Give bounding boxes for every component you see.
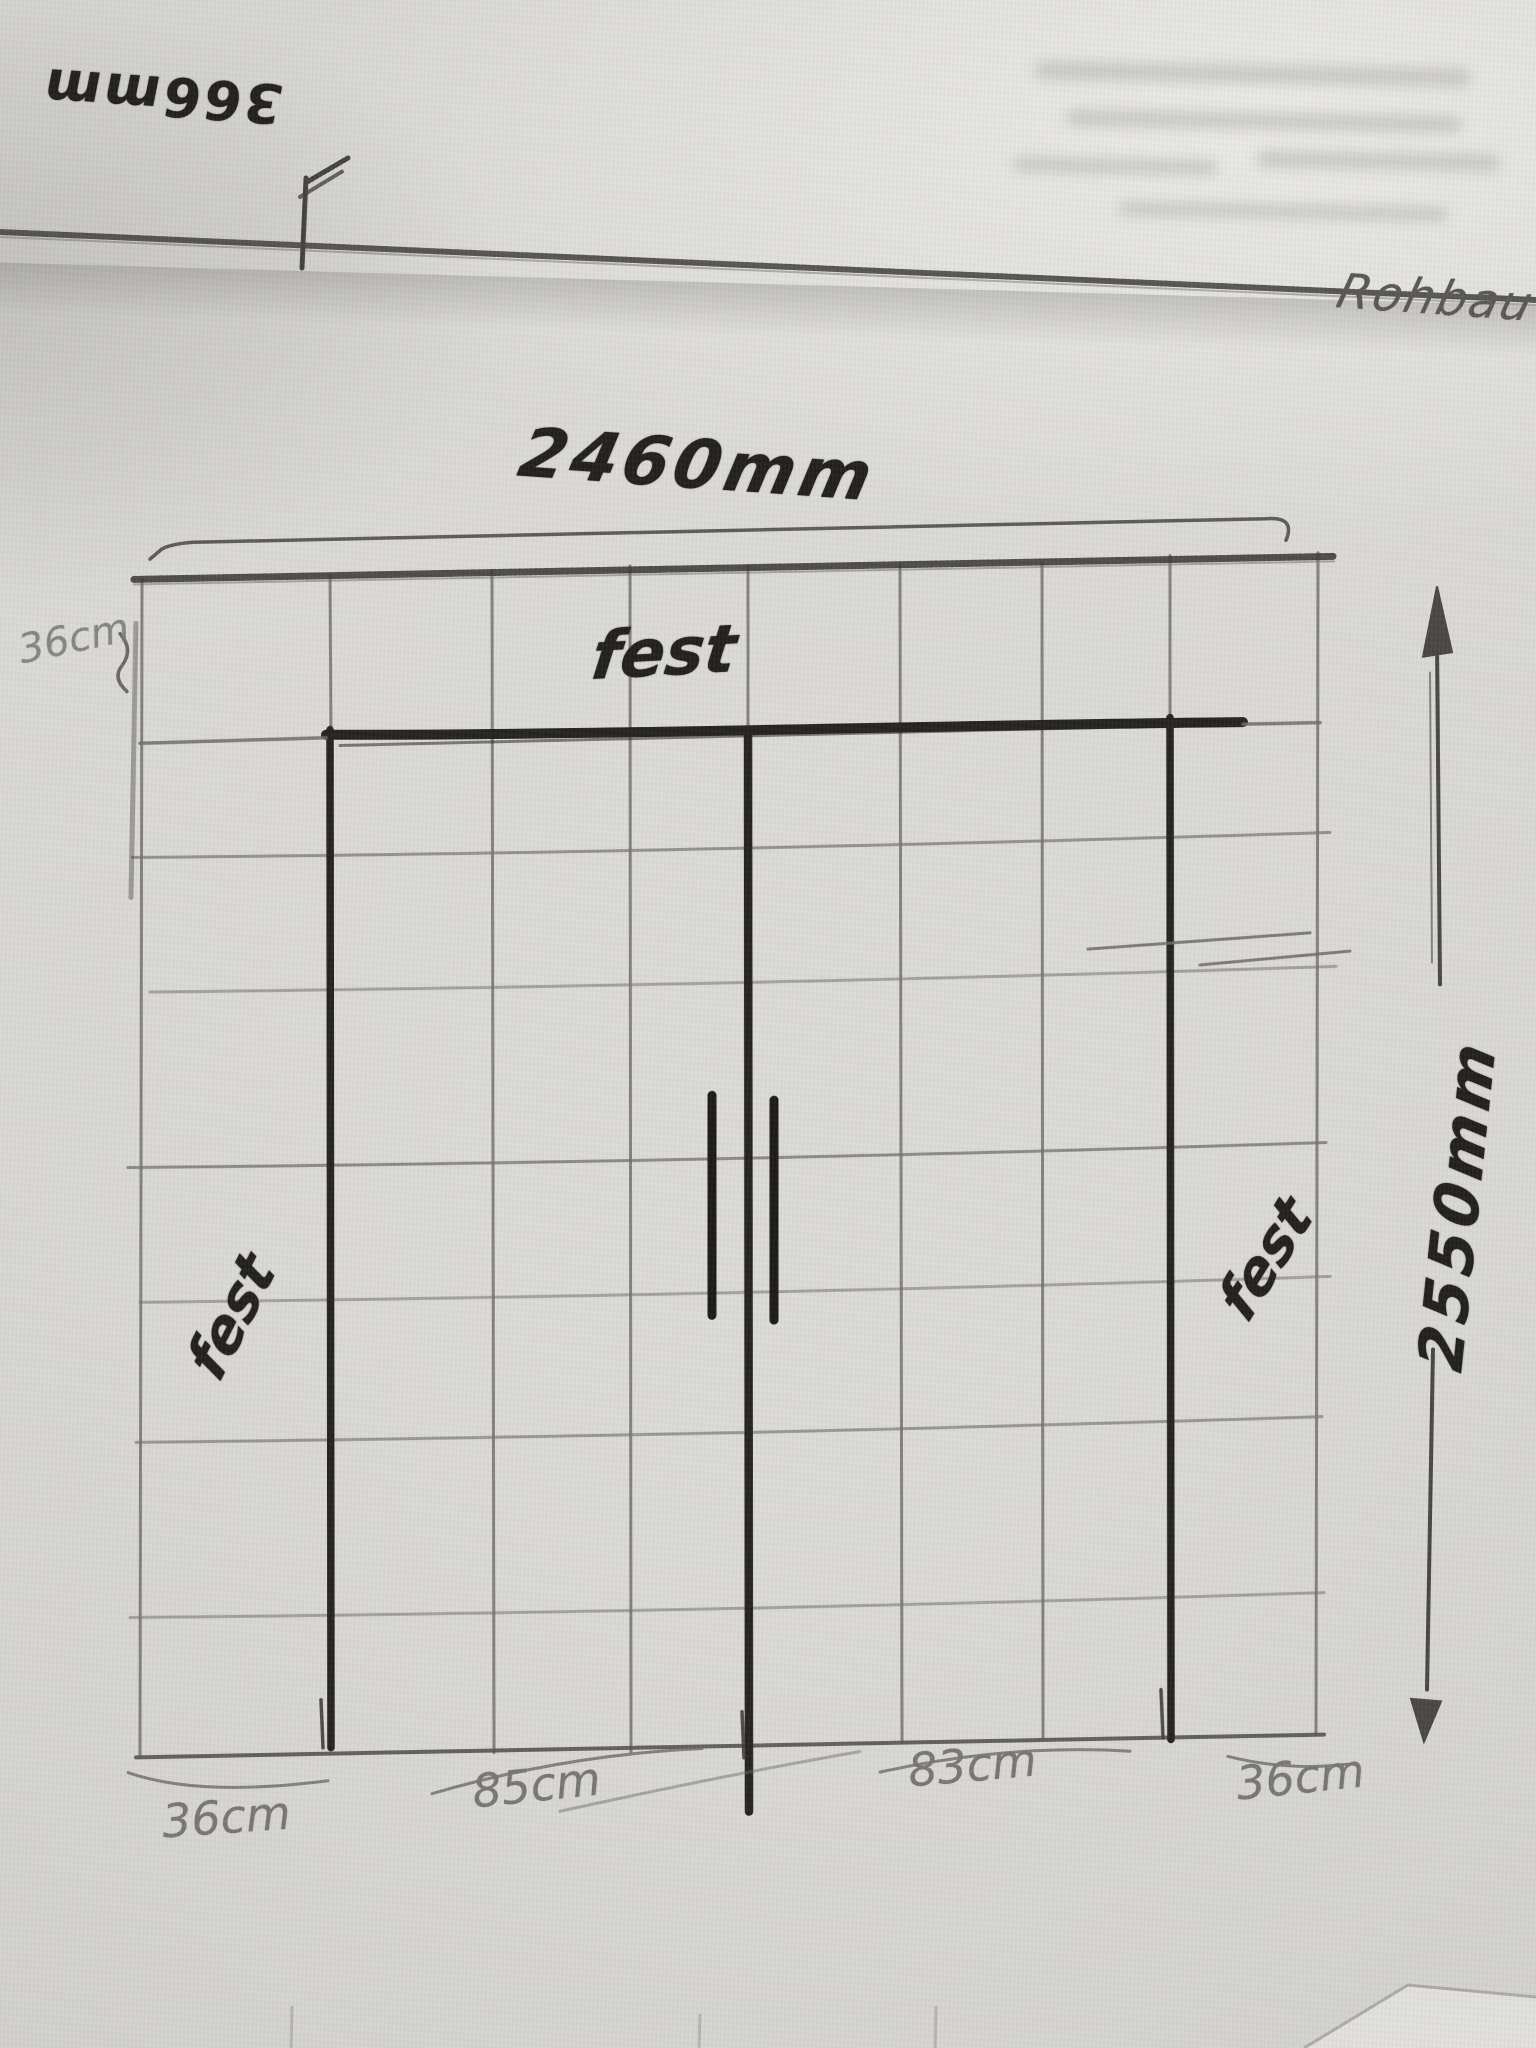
- marker-frame-lines: [326, 712, 1243, 1820]
- fixed-panel-label-top: fest: [587, 610, 741, 695]
- right-panel-pencil-marks: [1088, 932, 1350, 967]
- sketch-linework: [0, 0, 1536, 2048]
- photo-of-sketch: 366mm Rohbau 2460mm 36cm fest fest fest …: [0, 0, 1536, 2048]
- bottom-dimension-label-1: 36cm: [160, 1786, 292, 1849]
- door-handle-bars: [712, 1094, 774, 1321]
- bottom-leader-squiggles: [128, 1736, 1348, 1819]
- main-sketch-group: [118, 515, 1452, 1824]
- width-dimension-line: [150, 518, 1289, 562]
- bottom-border: [136, 1735, 1324, 1758]
- upper-strip-dimension-line: [0, 158, 1536, 305]
- top-border: [134, 556, 1334, 584]
- left-border-smudge: [118, 623, 136, 897]
- underlying-print-lines: [291, 2006, 936, 2048]
- bottom-sheet-corner: [1304, 1985, 1536, 2048]
- pencil-grid-horizontals: [128, 832, 1336, 1620]
- sill-tick-marks: [321, 1684, 1163, 1766]
- bottom-dimension-label-3: 83cm: [906, 1732, 1039, 1797]
